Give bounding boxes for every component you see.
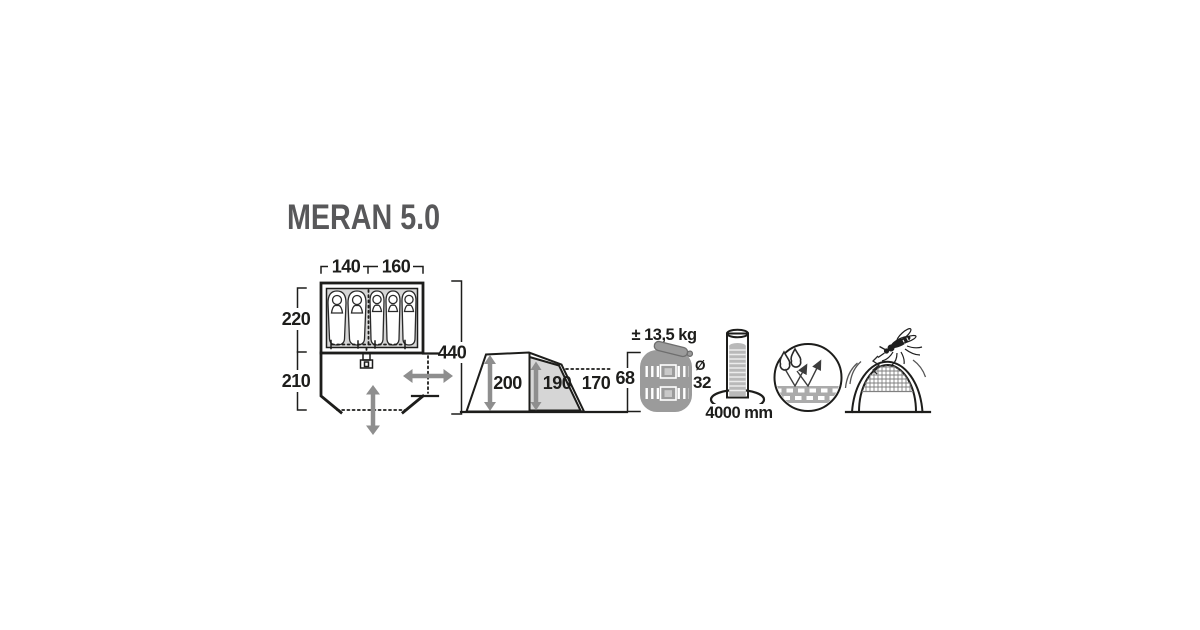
spec-drawing: 140 160 220 210 440 xyxy=(0,0,1200,630)
sleeping-bag-icon xyxy=(386,291,400,345)
mosquito-protection-icon xyxy=(846,327,931,412)
dimension-label-depth-porch: 210 xyxy=(282,371,311,391)
pack-size-icon: ± 13,5 kg 68 xyxy=(612,326,711,412)
height-cabin-label: 190 xyxy=(543,373,572,393)
dimension-label-length-total: 440 xyxy=(438,343,467,363)
water-column-label: 4000 mm xyxy=(705,404,772,422)
diameter-symbol: Ø xyxy=(695,358,705,373)
porch-outline xyxy=(321,353,438,413)
height-front-label: 200 xyxy=(493,373,522,393)
tent-spec-diagram: MERAN 5.0 140 160 xyxy=(0,0,1200,630)
dimension-label-width-right: 160 xyxy=(382,257,411,277)
dimension-label-depth-sleeping: 220 xyxy=(282,309,311,329)
dimension-length-bracket: 440 xyxy=(435,281,469,414)
sleeping-bag-icon xyxy=(328,291,346,345)
mosquito-icon xyxy=(878,327,922,365)
pack-length-bracket: 68 xyxy=(612,353,640,412)
water-drop-icon xyxy=(780,349,801,370)
sleeping-bag-icon xyxy=(402,291,416,345)
carry-bag-icon xyxy=(640,341,693,412)
water-column-icon: 4000 mm xyxy=(705,330,772,422)
side-view: 200 190 170 xyxy=(461,353,627,413)
sleeping-bag-icon xyxy=(370,291,384,345)
weight-label: ± 13,5 kg xyxy=(631,326,696,344)
diameter-label: 32 xyxy=(693,373,711,392)
floor-plan: 140 160 220 210 440 xyxy=(280,256,469,435)
dimension-width-bracket: 140 160 xyxy=(321,256,423,277)
sleeping-bag-icon xyxy=(348,291,366,345)
dimension-label-width-left: 140 xyxy=(332,257,361,277)
pack-length-label: 68 xyxy=(615,368,635,388)
height-rear-label: 170 xyxy=(582,373,611,393)
zipper-icon xyxy=(361,348,373,368)
breathable-fabric-icon xyxy=(772,344,842,411)
sleeping-bag-icons xyxy=(328,291,416,345)
dimension-depth-bracket: 220 210 xyxy=(280,288,311,410)
